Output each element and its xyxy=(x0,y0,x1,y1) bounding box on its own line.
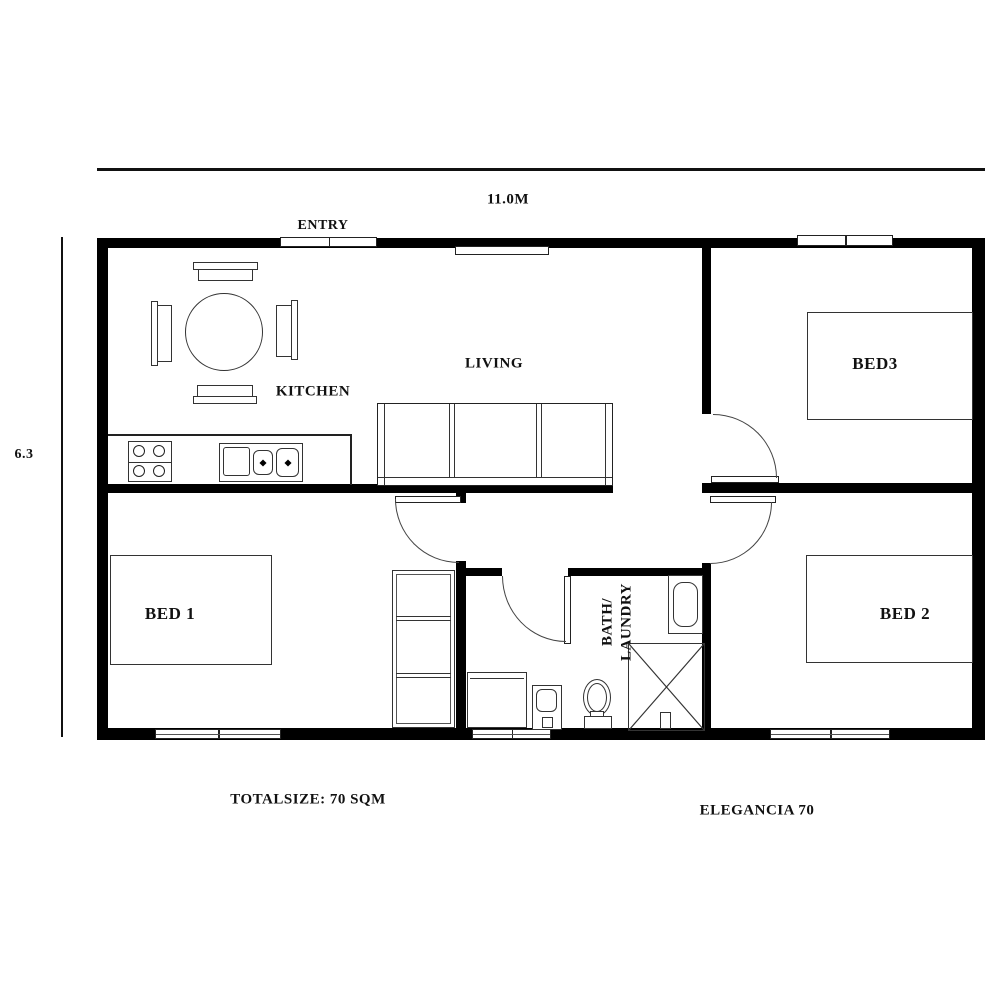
sofa-back xyxy=(378,477,612,485)
bed3-label: BED3 xyxy=(852,354,897,374)
sofa-arm-right xyxy=(605,404,612,485)
shelf-inner xyxy=(396,574,451,724)
toilet-icon xyxy=(532,685,562,730)
shelf-unit-icon xyxy=(392,570,455,728)
kitchen-sink-icon xyxy=(219,443,303,482)
kitchen-counter-edge xyxy=(108,434,352,436)
bed1-right-wall xyxy=(456,561,466,730)
width-dimension-label: 11.0M xyxy=(487,192,529,209)
bathtub-icon xyxy=(668,575,703,634)
bed1-window-glass-line xyxy=(156,734,280,735)
bed3-window xyxy=(797,235,893,246)
entry-label: ENTRY xyxy=(297,218,348,234)
bed2-window xyxy=(770,729,890,739)
sofa-arm-left xyxy=(378,404,385,485)
sink-basin xyxy=(253,450,273,475)
washing-machine-icon xyxy=(467,672,527,728)
height-dimension-label: 6.3 xyxy=(15,447,34,463)
dining-table-icon xyxy=(185,293,263,371)
toilet-base xyxy=(542,717,553,728)
top-dimension-line xyxy=(97,168,985,171)
bed2-label: BED 2 xyxy=(880,604,930,624)
bathtub-inner xyxy=(673,582,698,627)
basin-inner xyxy=(587,683,607,712)
burner-icon xyxy=(153,445,165,457)
burner-icon xyxy=(133,465,145,477)
sofa-seat-divider xyxy=(536,404,542,477)
sink-drainboard xyxy=(223,447,250,476)
living-window xyxy=(455,246,549,255)
bed1-label: BED 1 xyxy=(145,604,195,624)
toilet-bowl xyxy=(536,689,557,712)
bed3-door-swing xyxy=(713,414,777,478)
shower-column-icon xyxy=(660,712,671,729)
sofa-icon xyxy=(377,403,613,486)
kitchen-counter-end xyxy=(350,434,352,485)
bath-window-glass-line xyxy=(473,734,550,735)
living-label: LIVING xyxy=(465,356,523,373)
sink-drain-dot xyxy=(259,459,266,466)
entry-door-divider xyxy=(329,238,331,246)
sink-drain-dot xyxy=(284,459,291,466)
chair-back-right xyxy=(291,300,298,360)
shelf-divider xyxy=(396,616,451,621)
bath-label-line2: LAUNDRY xyxy=(617,583,636,661)
living-bed3-wall xyxy=(702,246,711,414)
bed2-window-glass-line xyxy=(771,734,889,735)
shelf-divider xyxy=(396,673,451,678)
bath-label-line1: BATH/ xyxy=(598,583,617,661)
cooktop-divider xyxy=(129,462,171,463)
burner-icon xyxy=(153,465,165,477)
chair-back-bottom xyxy=(193,396,257,404)
bath-window xyxy=(472,729,551,739)
sofa-seat-divider xyxy=(449,404,455,477)
bath-laundry-label: BATH/ LAUNDRY xyxy=(598,583,636,661)
chair-seat-left xyxy=(157,305,172,362)
bed2-door-swing xyxy=(710,502,772,564)
model-name-label: ELEGANCIA 70 xyxy=(700,803,815,820)
bed3-window-divider xyxy=(845,236,847,245)
kitchen-label: KITCHEN xyxy=(276,384,350,401)
burner-icon xyxy=(133,445,145,457)
chair-seat-right xyxy=(276,305,292,357)
washer-panel-line xyxy=(470,678,524,679)
floor-plan: 11.0M 6.3 ENTRY xyxy=(0,0,1000,1000)
bath-top-wall-left xyxy=(466,568,502,576)
bath-door-swing xyxy=(502,576,566,642)
bed1-window xyxy=(155,729,281,739)
entry-door xyxy=(280,237,377,247)
chair-seat-top xyxy=(198,269,253,281)
bed1-door-swing xyxy=(395,499,459,563)
sink-basin xyxy=(276,448,299,477)
cooktop-icon xyxy=(128,441,172,482)
total-size-label: TOTALSIZE: 70 SQM xyxy=(230,792,385,809)
mid-wall-right xyxy=(702,483,985,493)
left-dimension-line xyxy=(61,237,63,737)
basin-pedestal-base xyxy=(584,716,612,729)
